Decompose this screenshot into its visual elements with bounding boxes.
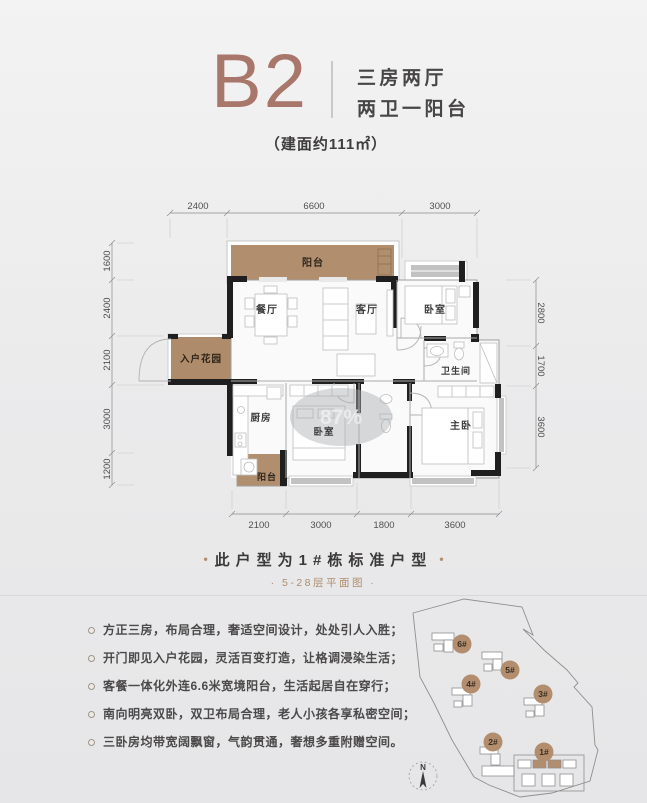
bullet-icon [88,739,95,746]
svg-text:1800: 1800 [373,520,394,531]
feature-text: 开门即见入户花园，灵活百变打造，让格调浸染生活； [103,652,403,665]
unit-type-line2: 两卫一阳台 [357,94,470,125]
loading-watermark: 87% [290,388,392,446]
badge-label: 1# [539,747,549,757]
room-label-bedroom-mid: 卧室 [313,426,334,438]
room-label-balcony-top: 阳台 [302,256,324,269]
svg-text:2100: 2100 [102,349,113,370]
svg-text:3600: 3600 [535,416,546,437]
compass-icon: N [409,762,437,790]
highlighted-unit [548,760,561,768]
room-label-kitchen: 厨房 [250,412,271,424]
site-buildings [432,633,584,791]
svg-text:87%: 87% [320,406,362,429]
feature-text: 客餐一体化外连6.6米宽境阳台，生活起居自在穿行； [103,680,396,693]
svg-text:1600: 1600 [102,250,113,271]
room-label-entry-garden: 入户花园 [179,353,222,365]
svg-text:1200: 1200 [102,458,113,479]
badge-label: 3# [538,689,548,699]
room-label-bathroom: 卫生间 [441,365,471,376]
bullet-icon [88,655,95,662]
room-label-balcony-small: 阳台 [257,471,277,482]
site-plan: 6# 5# 4# 3# 2# 1# N [402,595,645,803]
badge-label: 6# [457,639,467,649]
room-label-dining: 餐厅 [255,303,278,316]
bullet-icon [88,711,95,718]
unit-type-line1: 三房两厅 [357,63,470,94]
feature-item: 开门即见入户花园，灵活百变打造，让格调浸染生活； [88,652,418,665]
svg-text:3000: 3000 [429,201,450,212]
svg-text:2800: 2800 [535,302,546,323]
room-label-living: 客厅 [355,303,378,316]
bullet-icon [88,627,95,634]
caption: •此户型为1#栋标准户型• · 5-28层平面图 · [0,549,647,590]
feature-text: 南向明亮双卧，双卫布局合理，老人小孩各享私密空间； [103,708,416,721]
feature-item: 南向明亮双卧，双卫布局合理，老人小孩各享私密空间； [88,708,418,721]
area-note: （建面约111㎡） [176,133,476,154]
svg-text:6600: 6600 [303,201,324,212]
unit-code: B2 [211,44,308,120]
svg-text:N: N [420,763,426,772]
feature-text: 三卧房均带宽阔飘窗，气韵贯通，奢想多重附赠空间。 [103,736,403,749]
room-label-master: 主卧 [450,419,472,432]
feature-text: 方正三房，布局合理，奢适空间设计，处处引人入胜； [103,624,403,637]
badge-label: 4# [466,679,476,689]
badge-label: 5# [505,665,515,675]
svg-text:2400: 2400 [187,201,208,212]
caption-title: 此户型为1#栋标准户型 [215,552,433,569]
svg-text:3000: 3000 [310,520,331,531]
caption-right-dot: • [432,552,450,566]
badge-label: 2# [488,737,498,747]
feature-item: 方正三房，布局合理，奢适空间设计，处处引人入胜； [88,624,418,637]
feature-item: 客餐一体化外连6.6米宽境阳台，生活起居自在穿行； [88,680,418,693]
caption-subtitle: · 5-28层平面图 · [0,575,647,590]
caption-left-dot: • [196,552,214,566]
floorplan-page: B2 三房两厅 两卫一阳台 （建面约111㎡） [0,0,647,803]
floorplan-drawing: 2400 6600 3000 1600 2400 2100 3000 1200 … [94,198,554,533]
bullet-icon [88,683,95,690]
unit-type-lines: 三房两厅 两卫一阳台 [357,63,470,125]
svg-text:1700: 1700 [535,355,546,376]
feature-item: 三卧房均带宽阔飘窗，气韵贯通，奢想多重附赠空间。 [88,736,418,749]
svg-text:3600: 3600 [444,520,465,531]
room-label-bedroom-top: 卧室 [424,303,446,316]
svg-text:2400: 2400 [102,297,113,318]
feature-list: 方正三房，布局合理，奢适空间设计，处处引人入胜； 开门即见入户花园，灵活百变打造… [88,624,418,764]
caption-title-line: •此户型为1#栋标准户型• [0,549,647,570]
svg-text:2100: 2100 [248,520,269,531]
header-divider [331,61,333,118]
svg-text:3000: 3000 [102,408,113,429]
